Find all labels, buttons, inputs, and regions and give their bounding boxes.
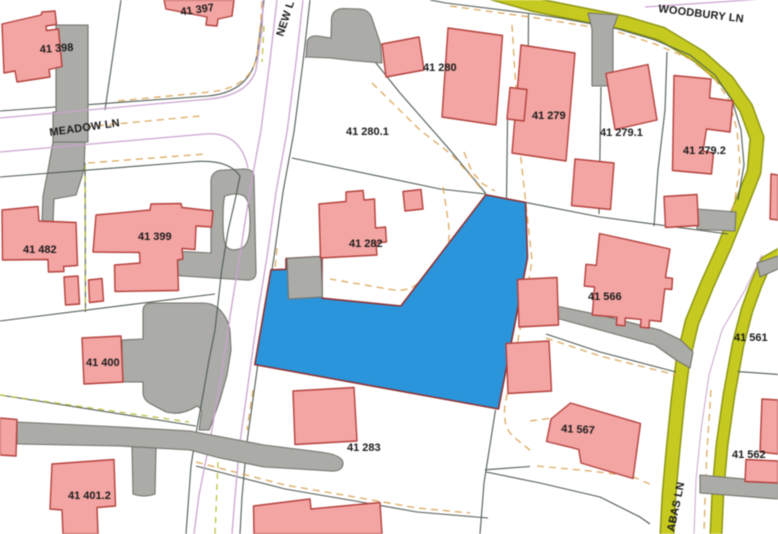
svg-text:41 280.1: 41 280.1 <box>346 126 389 138</box>
svg-text:41 399: 41 399 <box>138 231 172 243</box>
svg-text:41 401.2: 41 401.2 <box>68 490 111 502</box>
svg-text:41 279.2: 41 279.2 <box>683 145 726 157</box>
svg-text:41 566: 41 566 <box>588 291 622 303</box>
svg-text:41 398: 41 398 <box>39 42 73 56</box>
svg-text:41 280: 41 280 <box>423 62 457 74</box>
svg-text:41 561: 41 561 <box>734 332 768 344</box>
svg-text:41 482: 41 482 <box>23 244 57 256</box>
svg-text:41 283: 41 283 <box>347 442 381 454</box>
svg-text:41 282: 41 282 <box>349 238 383 250</box>
svg-text:41 567: 41 567 <box>561 423 595 437</box>
svg-text:41 279.1: 41 279.1 <box>600 127 643 139</box>
svg-text:41 279: 41 279 <box>532 110 566 122</box>
svg-text:41 562: 41 562 <box>732 449 766 461</box>
svg-text:41 400: 41 400 <box>86 357 120 369</box>
